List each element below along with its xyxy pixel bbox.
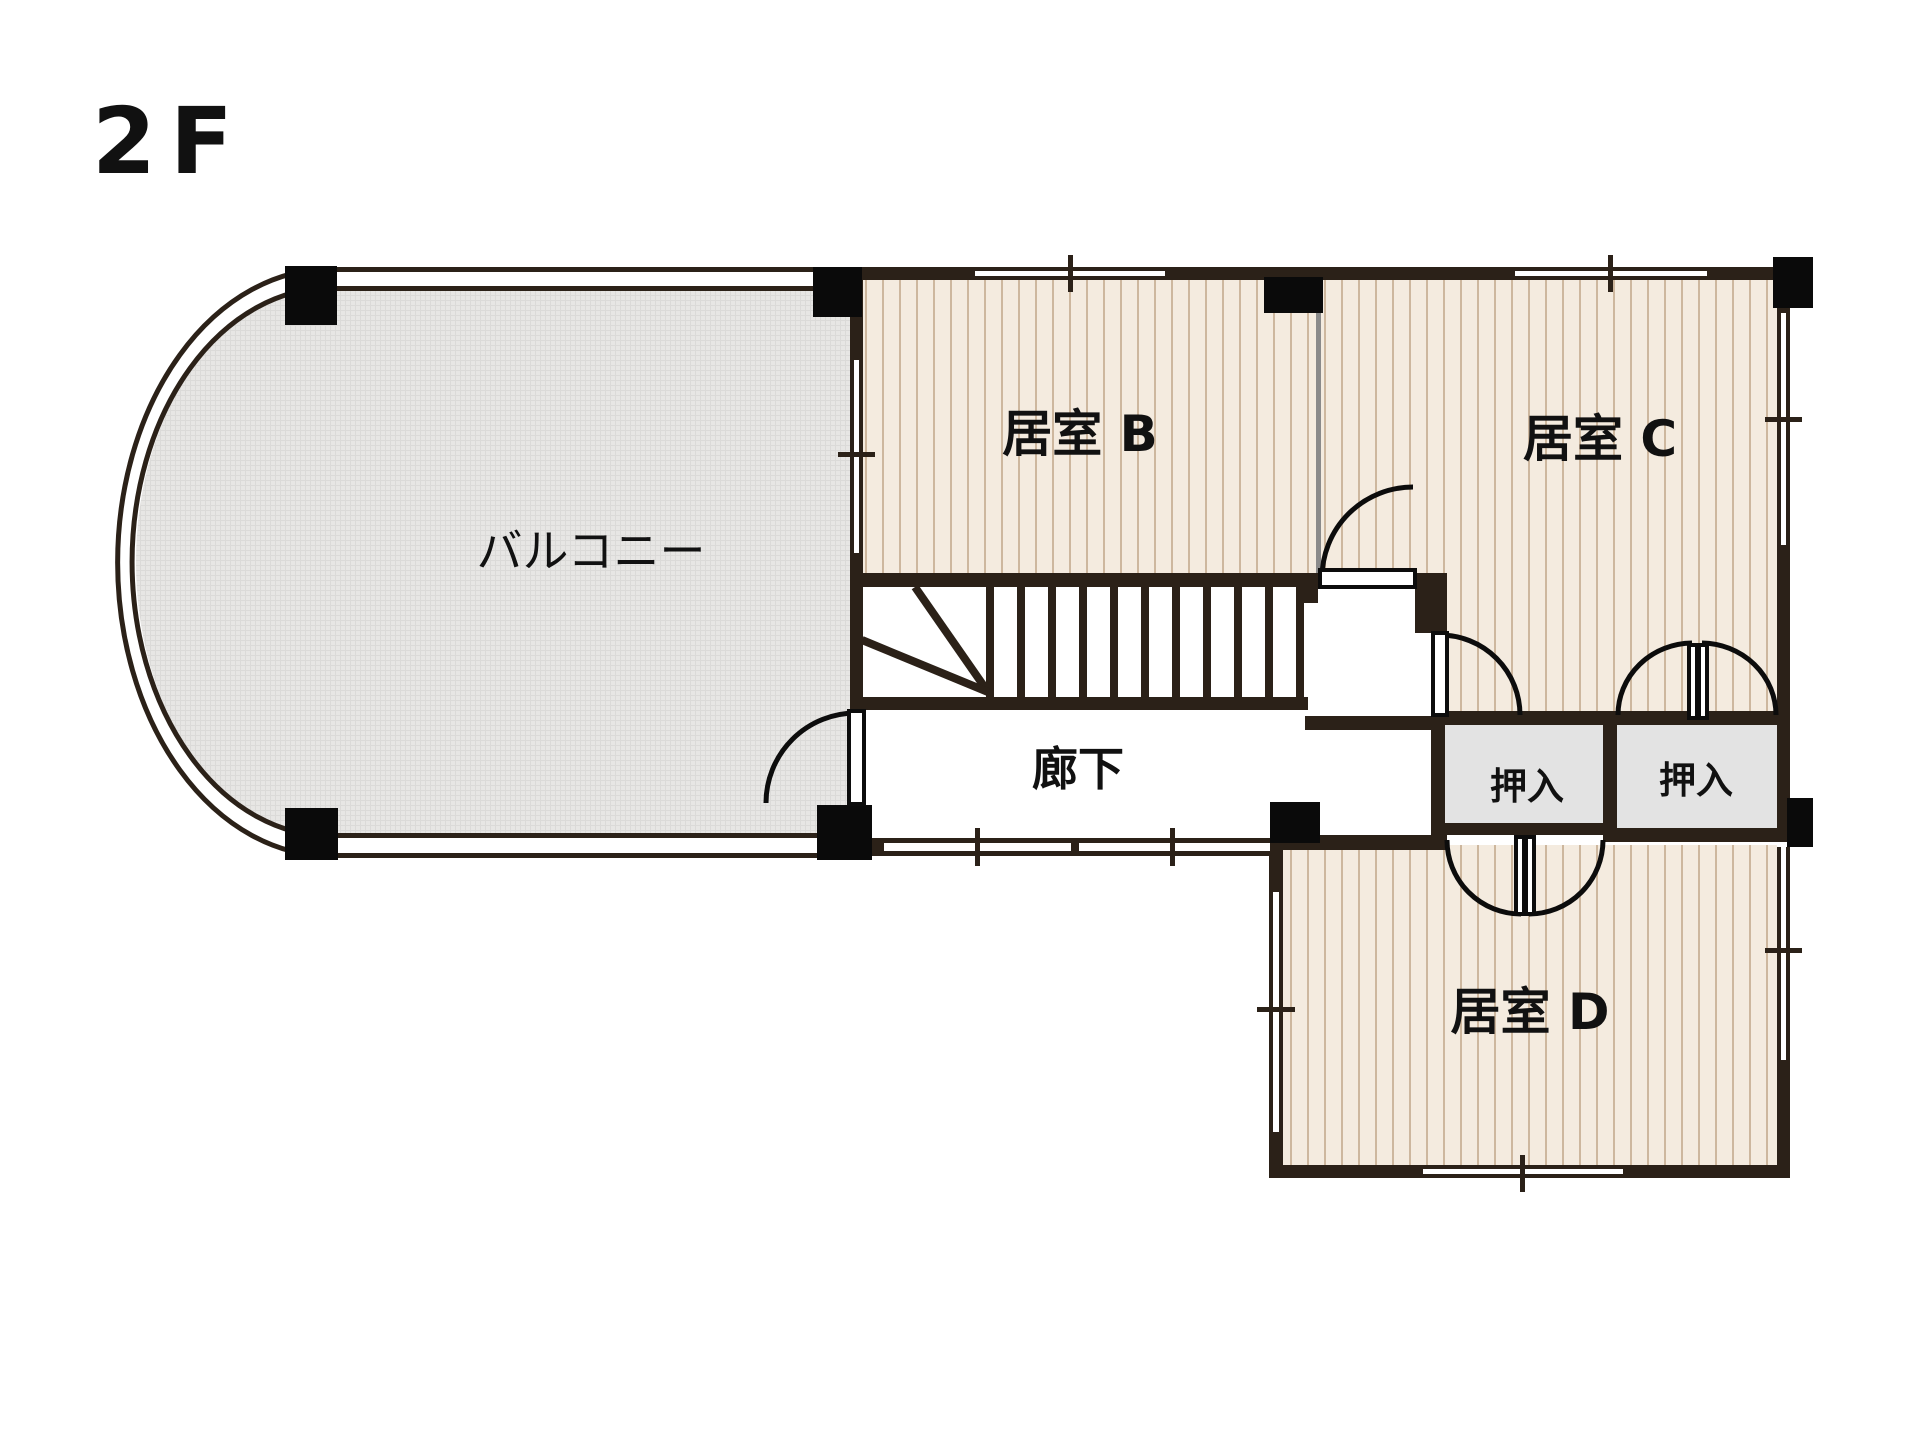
post-balcony-bottom <box>285 808 338 860</box>
staircase <box>862 587 1300 697</box>
post-partition-top <box>1264 277 1323 313</box>
room-b-label: 居室 B <box>1002 394 1158 466</box>
post-balcony-top <box>285 266 337 325</box>
post-top-right <box>1773 257 1813 308</box>
post-hall-corner <box>817 805 872 860</box>
floor-plan: 2F バルコニー 居室 B 居室 C 居室 D 廊下 押入 押入 <box>0 0 1920 1440</box>
closet-right-label: 押入 <box>1659 750 1733 804</box>
balcony-label: バルコニー <box>476 515 705 581</box>
closet-left-label: 押入 <box>1490 756 1564 810</box>
room-c-label: 居室 C <box>1523 399 1677 471</box>
floor-plan-drawing <box>0 0 1920 1440</box>
post-room-d-corner <box>1270 802 1320 843</box>
room-b-c-partition <box>1316 280 1321 573</box>
room-d-label: 居室 D <box>1451 972 1610 1044</box>
hallway-label: 廊下 <box>1032 733 1124 799</box>
post-right-middle <box>1787 798 1813 847</box>
floor-label: 2F <box>92 88 247 195</box>
post-room-b-corner <box>813 267 862 317</box>
